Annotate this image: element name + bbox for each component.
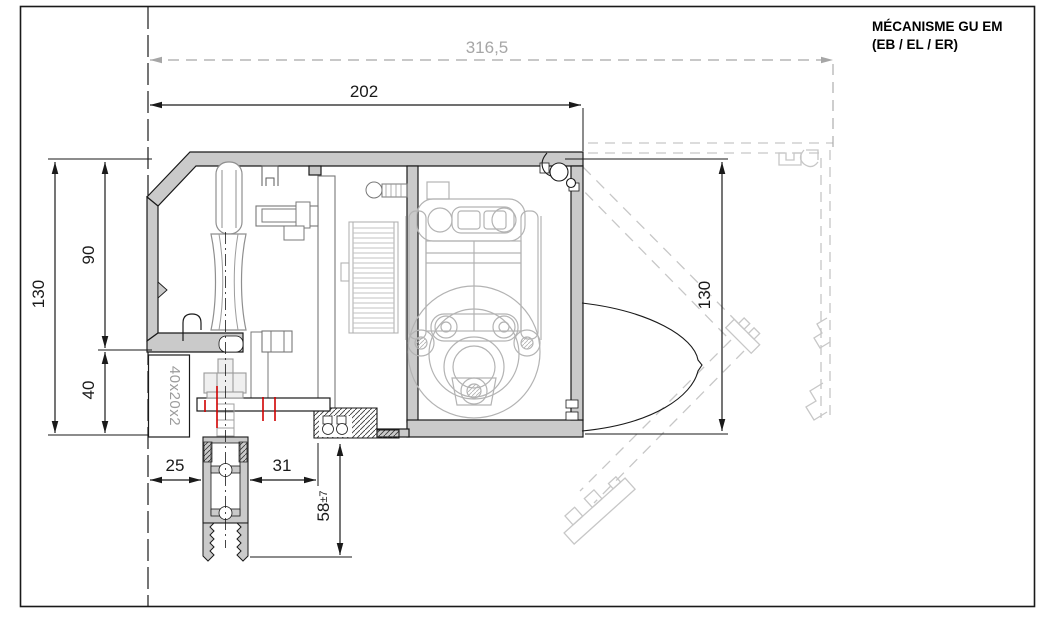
hex-bolt [262, 331, 292, 352]
dim-rail-height: 90 [79, 162, 105, 348]
floor-channel [219, 336, 243, 352]
dim-overall-width: 316,5 [150, 38, 833, 150]
clamp-jaw-right [237, 523, 248, 561]
housing-clip [309, 166, 321, 175]
cad-drawing: 316,5 202 130 90 40 40x20x2 130 25 [0, 0, 1052, 622]
belt-pulley [341, 222, 398, 333]
housing-left-wall [147, 197, 158, 341]
svg-text:130: 130 [695, 281, 714, 309]
dim-gap-right: 31 [250, 443, 318, 486]
clamp-jaw-left [203, 523, 214, 561]
housing-right-wall [571, 166, 583, 420]
title-line-1: MÉCANISME GU EM [872, 19, 1003, 34]
svg-text:31: 31 [273, 456, 292, 475]
motor-assembly [406, 182, 541, 418]
housing-top-band [147, 152, 583, 206]
title-block: MÉCANISME GU EM (EB / EL / ER) [872, 19, 1003, 52]
bolt-nut [204, 359, 246, 398]
title-line-2: (EB / EL / ER) [872, 37, 958, 52]
svg-text:40x20x2: 40x20x2 [166, 366, 183, 426]
svg-text:58±7: 58±7 [314, 490, 333, 521]
dim-drop: 58±7 [250, 444, 352, 557]
svg-text:25: 25 [166, 456, 185, 475]
drawing-frame [21, 7, 1035, 607]
carriage-plate [318, 176, 335, 408]
svg-text:40: 40 [79, 381, 98, 400]
dim-mechanism-width: 202 [150, 82, 583, 151]
extension-lines-left [48, 159, 152, 435]
tube-label-box: 40x20x2 [149, 355, 190, 437]
technical-drawing-page: 316,5 202 130 90 40 40x20x2 130 25 [0, 0, 1052, 622]
wall-notch [158, 282, 167, 298]
section-bracket [314, 408, 399, 438]
roller-wheel [211, 234, 246, 330]
svg-text:316,5: 316,5 [466, 38, 509, 57]
dim-height-left: 130 [29, 162, 55, 433]
svg-text:202: 202 [350, 82, 378, 101]
housing-bottom-band [407, 420, 583, 437]
svg-text:130: 130 [29, 280, 48, 308]
dim-gap-left: 25 [150, 456, 201, 480]
dim-base-height: 40 [79, 352, 105, 433]
ghost-open-cover [556, 143, 833, 544]
housing-notches [219, 163, 579, 420]
svg-text:90: 90 [79, 246, 98, 265]
roller-damper [216, 162, 242, 234]
roller-carriage [211, 162, 407, 408]
